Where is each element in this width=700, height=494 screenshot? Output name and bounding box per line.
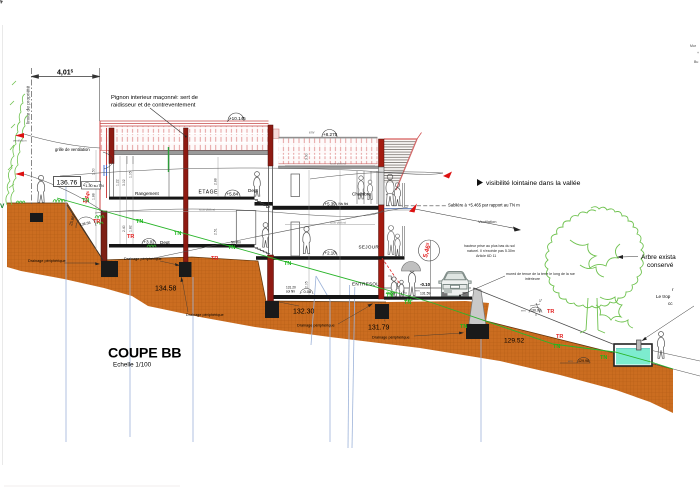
svg-text:V: V: [0, 203, 5, 210]
svg-text:2.88: 2.88: [214, 178, 218, 185]
svg-text:Arbre exista: Arbre exista: [641, 254, 676, 261]
svg-text:131.79: 131.79: [368, 325, 390, 332]
svg-text:COUPE BB: COUPE BB: [108, 346, 181, 362]
svg-text:SEJOUR: SEJOUR: [359, 245, 380, 250]
svg-text:Niv fini: Niv fini: [231, 241, 241, 245]
svg-text:Drainage périphérique: Drainage périphérique: [297, 324, 335, 328]
svg-text:sous-plafond: sous-plafond: [330, 221, 346, 225]
svg-text:Mur: Mur: [690, 44, 697, 48]
svg-text:1.05: 1.05: [129, 171, 133, 178]
svg-text:Sablière à +5.465 par rapport: Sablière à +5.465 par rapport au TN m: [448, 203, 520, 208]
svg-text:TN: TN: [174, 231, 181, 237]
svg-text:Degt: Degt: [160, 240, 170, 245]
svg-text:- 0.08: - 0.08: [301, 289, 312, 294]
svg-text:+5.39: +5.39: [325, 202, 337, 207]
svg-text:env: env: [568, 359, 573, 363]
svg-text:TN: TN: [460, 324, 467, 330]
svg-text:132.30: 132.30: [293, 309, 315, 316]
svg-text:TN: TN: [553, 344, 560, 350]
svg-text:Pignon interieur maçonné: ser: Pignon interieur maçonné: sert de: [111, 95, 198, 101]
svg-text:env: env: [309, 131, 315, 135]
svg-text:1.82: 1.82: [129, 225, 133, 232]
svg-text:ETAGE: ETAGE: [199, 190, 219, 196]
svg-text:TR: TR: [556, 334, 563, 340]
svg-text:naturel. Il n'excède pas 5.30m: naturel. Il n'excède pas 5.30m: [467, 249, 515, 253]
svg-text:cc: cc: [668, 301, 673, 306]
svg-text:1.88: 1.88: [92, 193, 96, 200]
svg-text:3.02: 3.02: [122, 179, 126, 186]
svg-text:+3.02: +3.02: [144, 240, 156, 245]
svg-text:Drainage périphérique: Drainage périphérique: [124, 257, 162, 261]
svg-text:conservé: conservé: [647, 262, 674, 269]
svg-text:Article 6D 11: Article 6D 11: [476, 254, 496, 258]
svg-text:Le trop: Le trop: [656, 294, 671, 299]
svg-text:2.51: 2.51: [214, 228, 218, 235]
svg-text:hauteur prise au plus bas du s: hauteur prise au plus bas du sol: [464, 244, 515, 248]
svg-text:131.59: 131.59: [420, 292, 430, 296]
svg-text:sous-plafond: sous-plafond: [330, 162, 346, 166]
svg-text:Niv fini: Niv fini: [339, 202, 349, 206]
svg-text:TN: TN: [404, 300, 411, 306]
svg-text:ventilation: ventilation: [13, 139, 27, 143]
svg-text:3.90: 3.90: [305, 153, 309, 160]
svg-text:+2.10: +2.10: [325, 251, 337, 256]
svg-text:2.05: 2.05: [305, 281, 309, 288]
svg-text:Bu: Bu: [694, 60, 698, 64]
svg-text:Drainage périphérique: Drainage périphérique: [28, 259, 66, 263]
svg-text:TR: TR: [211, 256, 218, 262]
svg-text:sous-plafond: sous-plafond: [199, 208, 215, 212]
svg-text:limite de propriété: limite de propriété: [26, 86, 32, 124]
svg-text:2.40: 2.40: [122, 225, 126, 232]
svg-text:+: +: [697, 51, 699, 55]
svg-text:129.52: 129.52: [504, 338, 525, 345]
svg-text:visibilité lointaine dans la v: visibilité lointaine dans la vallée: [486, 180, 581, 187]
svg-text:+1.30 su TN: +1.30 su TN: [83, 184, 104, 188]
svg-text:Drainage périphérique: Drainage périphérique: [186, 313, 224, 317]
svg-text:TN: TN: [600, 355, 607, 361]
svg-text:grille de ventilation: grille de ventilation: [55, 147, 90, 152]
svg-text:1.22: 1.22: [116, 179, 120, 186]
svg-text:136.76: 136.76: [57, 180, 78, 187]
svg-text:+8.275: +8.275: [323, 132, 338, 137]
svg-text:Drainage périphérique: Drainage périphérique: [372, 336, 410, 340]
svg-text:+5.84: +5.84: [227, 192, 239, 197]
svg-text:raidisseur et de contreventeme: raidisseur et de contreventement: [111, 103, 196, 109]
svg-text:env: env: [521, 309, 526, 313]
svg-text:TR: TR: [127, 234, 134, 240]
svg-text:1.50: 1.50: [92, 168, 96, 175]
svg-text:Ventilation: Ventilation: [478, 219, 496, 224]
svg-text:+10.145: +10.145: [229, 116, 246, 121]
svg-text:sol fini: sol fini: [286, 290, 295, 294]
svg-text:Degt: Degt: [248, 188, 258, 193]
svg-text:Rangement: Rangement: [135, 191, 159, 196]
svg-text:TN: TN: [284, 261, 291, 267]
svg-text:TN: TN: [386, 293, 393, 299]
svg-text:TN: TN: [136, 219, 143, 225]
svg-text:TR: TR: [93, 219, 100, 225]
svg-text:TR: TR: [547, 309, 554, 315]
svg-text:ENTRESOL: ENTRESOL: [352, 282, 379, 287]
svg-text:intérieure: intérieure: [525, 277, 540, 281]
svg-text:Chambre: Chambre: [352, 191, 371, 196]
svg-text:Echelle 1/100: Echelle 1/100: [113, 362, 152, 369]
svg-text:-0.10: -0.10: [420, 282, 431, 287]
svg-text:TN: TN: [228, 245, 235, 251]
svg-text:mured de tenue de la terre le: mured de tenue de la terre le long de la…: [506, 272, 575, 276]
svg-text:129.98: 129.98: [578, 359, 589, 363]
svg-text:134.58: 134.58: [155, 286, 177, 293]
